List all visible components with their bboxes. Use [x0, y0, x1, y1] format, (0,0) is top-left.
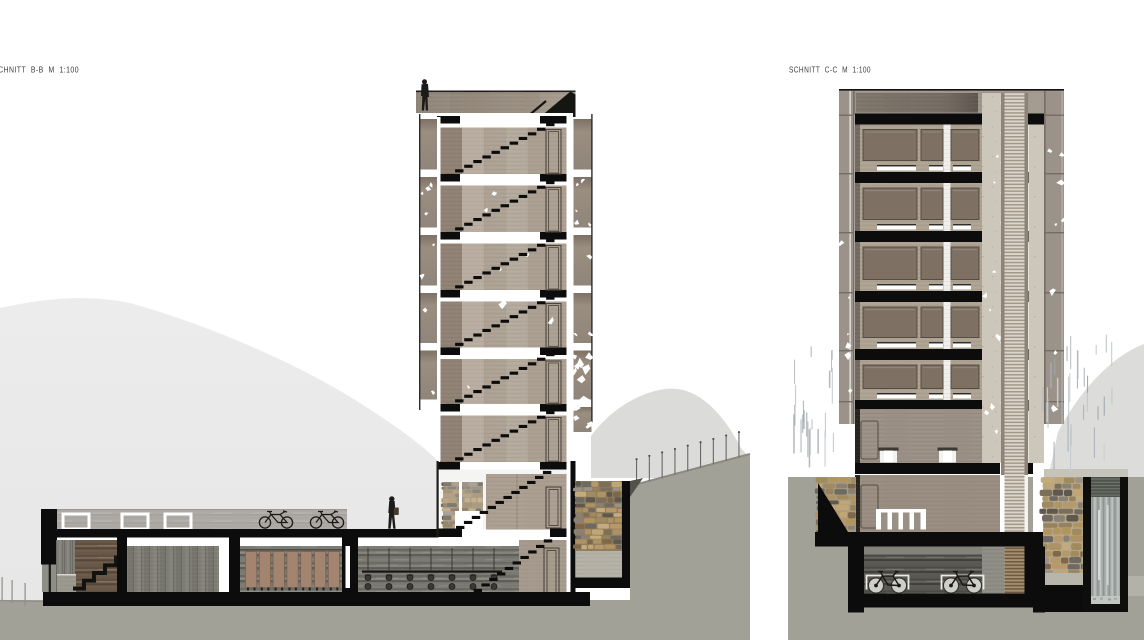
svg-text:SCHNITT B-B M 1:100: SCHNITT B-B M 1:100 — [0, 65, 79, 75]
svg-text:SCHNITT C-C M 1:100: SCHNITT C-C M 1:100 — [789, 65, 871, 75]
